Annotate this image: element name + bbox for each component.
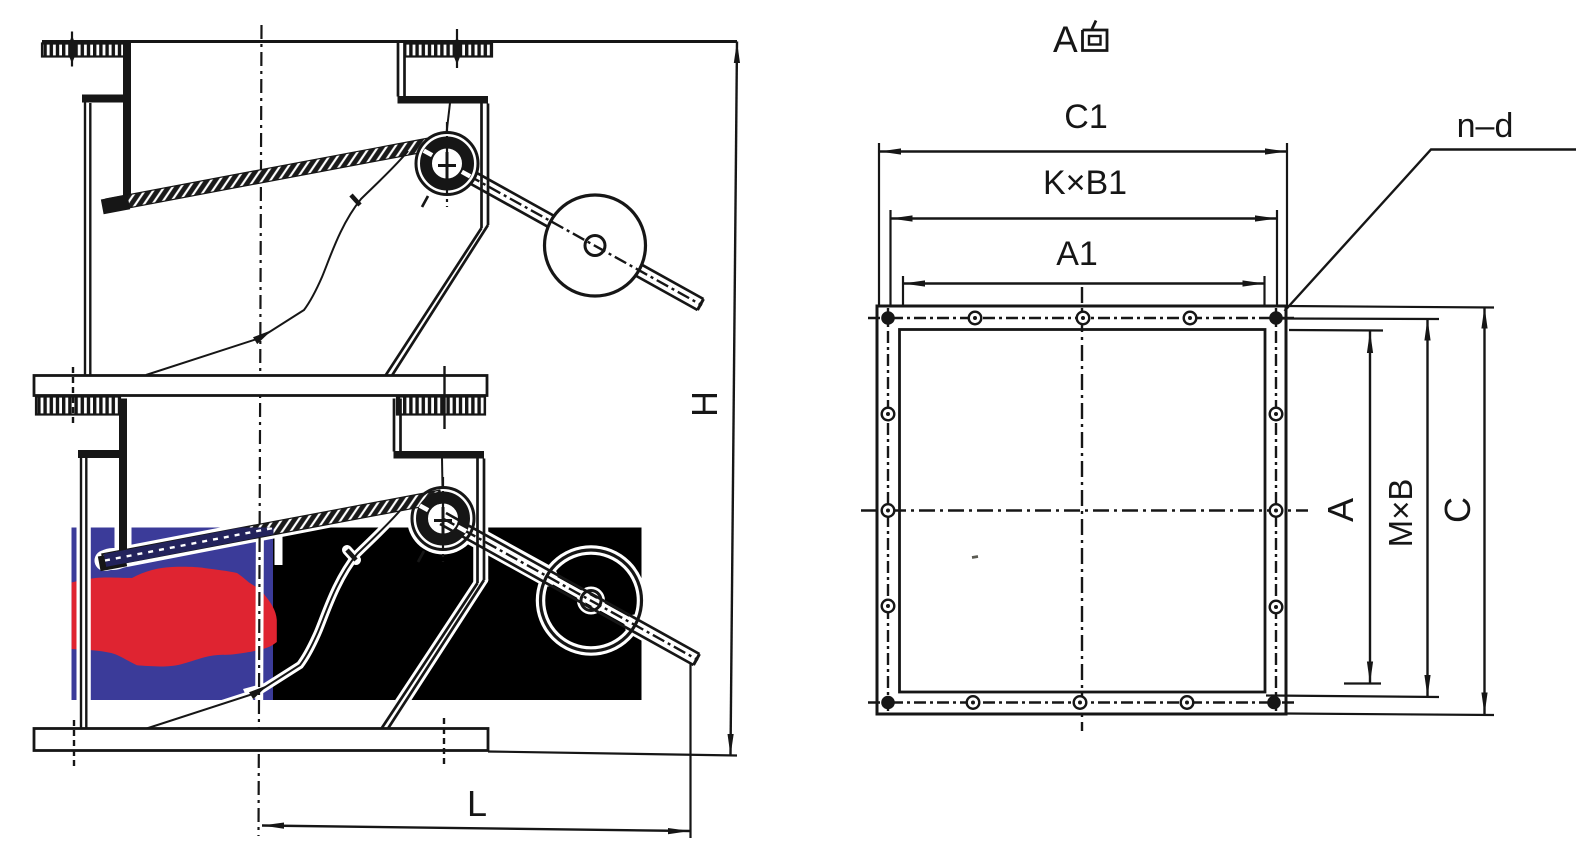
svg-text:A1: A1	[1056, 235, 1098, 273]
svg-text:C1: C1	[1064, 98, 1107, 136]
svg-text:K×B1: K×B1	[1043, 164, 1127, 202]
svg-text:H: H	[684, 391, 725, 417]
svg-text:A: A	[1320, 498, 1361, 522]
svg-text:A: A	[1053, 19, 1078, 60]
svg-text:M×B: M×B	[1382, 479, 1419, 548]
svg-text:C: C	[1437, 497, 1478, 523]
svg-text:n–d: n–d	[1457, 107, 1514, 145]
svg-text:L: L	[467, 783, 487, 824]
